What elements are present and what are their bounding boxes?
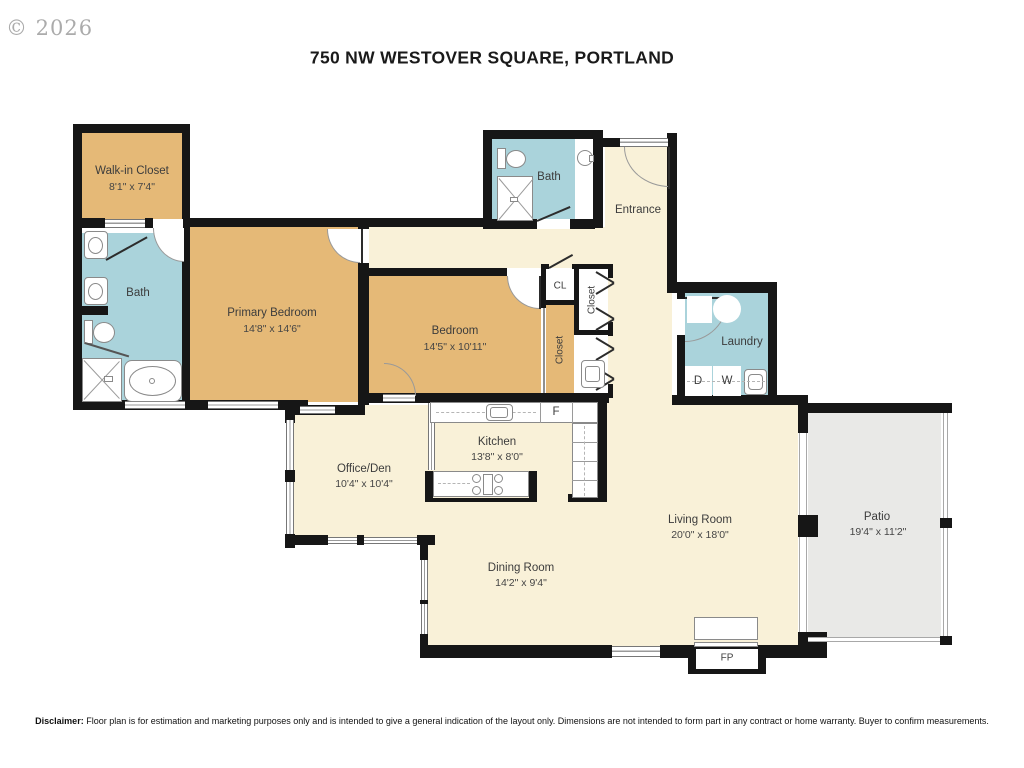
disclaimer: Disclaimer: Floor plan is for estimation…: [35, 716, 989, 726]
wall: [803, 403, 952, 413]
wall: [593, 133, 603, 228]
room-dims: 8'1" x 7'4": [109, 181, 155, 193]
toilet-bowl-icon: [93, 322, 115, 343]
window: [105, 219, 145, 228]
counter-divider: [572, 402, 573, 423]
wall: [357, 535, 364, 545]
wall: [677, 335, 685, 397]
wall: [73, 124, 190, 133]
dashed-line: [438, 483, 470, 484]
wall: [541, 300, 579, 305]
fireplace-label: FP: [721, 653, 734, 664]
toilet-icon: [497, 148, 506, 169]
room-label: Closet: [587, 286, 598, 314]
stove-burner-icon: [472, 486, 481, 495]
window: [421, 560, 428, 600]
toilet-icon: [84, 320, 93, 344]
wall: [183, 218, 190, 228]
wall: [367, 268, 507, 276]
room-label: Office/Den: [337, 463, 391, 475]
wall: [483, 130, 603, 139]
room-label: Bedroom: [432, 325, 479, 337]
wall: [420, 537, 428, 560]
wall: [420, 645, 612, 658]
room-label: Primary Bedroom: [227, 307, 316, 319]
oven-icon: [483, 474, 493, 495]
door-leaf: [668, 147, 670, 189]
door-leaf: [361, 229, 363, 263]
window: [125, 401, 185, 409]
window: [208, 401, 278, 409]
counter-divider: [540, 402, 541, 423]
wall: [595, 138, 620, 147]
wall: [73, 124, 82, 410]
room-label: Living Room: [668, 514, 732, 526]
hearth-step: [694, 642, 758, 647]
shower-valve-icon: [510, 197, 518, 202]
sink-basin-icon: [88, 283, 103, 300]
wall: [798, 515, 818, 537]
floor-plan-page: © 2026 750 NW WESTOVER SQUARE, PORTLAND: [0, 0, 1024, 768]
stove-burner-icon: [494, 474, 503, 483]
wall: [285, 470, 295, 482]
shower-valve-icon: [104, 376, 113, 382]
room-label: Laundry: [721, 336, 763, 348]
room-dims: 14'5" x 10'11": [424, 341, 487, 353]
room-label: Bath: [126, 287, 150, 299]
wall: [798, 632, 827, 658]
corridor: [608, 268, 672, 403]
dashed-line: [584, 426, 585, 496]
window: [612, 646, 660, 657]
fridge-label: F: [552, 406, 559, 418]
window: [364, 537, 417, 544]
patio-post: [940, 518, 952, 528]
wall: [285, 535, 328, 545]
stove-burner-icon: [472, 474, 481, 483]
cabinet-divider: [572, 442, 598, 443]
storage-box: [687, 296, 712, 323]
room-label: Kitchen: [478, 436, 516, 448]
room-label: Walk-in Closet: [95, 165, 169, 177]
room-dims: 19'4" x 11'2": [850, 526, 907, 538]
toilet-bowl-icon: [506, 150, 526, 168]
door-opening: [677, 299, 685, 335]
page-title: 750 NW WESTOVER SQUARE, PORTLAND: [310, 48, 674, 69]
wall: [798, 395, 808, 433]
wall: [672, 395, 803, 405]
door-opening: [507, 268, 541, 276]
room-walk-in-closet: [82, 133, 182, 225]
sink-basin-icon: [585, 366, 600, 382]
island-counter: [433, 471, 529, 497]
window: [286, 420, 294, 470]
room-dims: 10'4" x 10'4": [335, 478, 393, 490]
window: [286, 482, 294, 534]
room-label: Entrance: [615, 204, 661, 216]
patio-rail: [943, 528, 948, 636]
door-leaf: [539, 276, 541, 309]
wall: [608, 264, 613, 278]
door-opening: [153, 219, 183, 228]
wall: [483, 130, 492, 228]
wall: [768, 285, 777, 405]
dryer-label: D: [694, 375, 702, 387]
wall: [677, 282, 777, 293]
room-label: Dining Room: [488, 562, 554, 574]
room-label: Bath: [537, 171, 561, 183]
washer-label: W: [722, 375, 733, 387]
sliding-door: [799, 433, 807, 515]
window: [328, 537, 357, 544]
wall: [598, 393, 607, 502]
wall: [182, 124, 190, 228]
window: [421, 604, 428, 634]
copyright-watermark: © 2026: [6, 16, 93, 40]
patio-rail: [808, 637, 940, 642]
room-dims: 14'2" x 9'4": [495, 577, 547, 589]
room-dims: 13'8" x 8'0": [471, 451, 523, 463]
stove-burner-icon: [494, 486, 503, 495]
cabinet-divider: [572, 480, 598, 481]
drain-icon: [149, 378, 155, 384]
sink-basin-icon: [88, 237, 103, 254]
wall: [145, 218, 153, 228]
disclaimer-label: Disclaimer:: [35, 716, 84, 726]
room-label: Patio: [864, 511, 890, 523]
wall: [660, 645, 690, 658]
room-label: CL: [554, 281, 567, 292]
wall: [73, 218, 105, 228]
patio-post: [940, 636, 952, 645]
kitchen-sink-basin-icon: [490, 407, 508, 418]
room-dims: 14'8" x 14'6": [243, 323, 301, 335]
wall: [570, 219, 595, 229]
entry-door-opening: [620, 138, 668, 147]
room-label: Closet: [555, 336, 566, 364]
window: [300, 406, 335, 414]
water-heater-icon: [713, 295, 741, 323]
island-edge: [425, 498, 537, 502]
sliding-door: [799, 537, 807, 632]
cabinet-divider: [572, 461, 598, 462]
closet-front-line: [543, 308, 545, 395]
patio-rail: [943, 413, 948, 518]
door-opening: [537, 219, 570, 229]
faucet-icon: [589, 155, 594, 162]
hearth: [694, 617, 758, 640]
disclaimer-text: Floor plan is for estimation and marketi…: [84, 716, 989, 726]
wall: [608, 322, 613, 336]
room-dims: 20'0" x 18'0": [671, 529, 729, 541]
utility-sink-basin-icon: [748, 374, 763, 390]
wall: [190, 218, 492, 227]
wall-stub: [82, 306, 108, 315]
